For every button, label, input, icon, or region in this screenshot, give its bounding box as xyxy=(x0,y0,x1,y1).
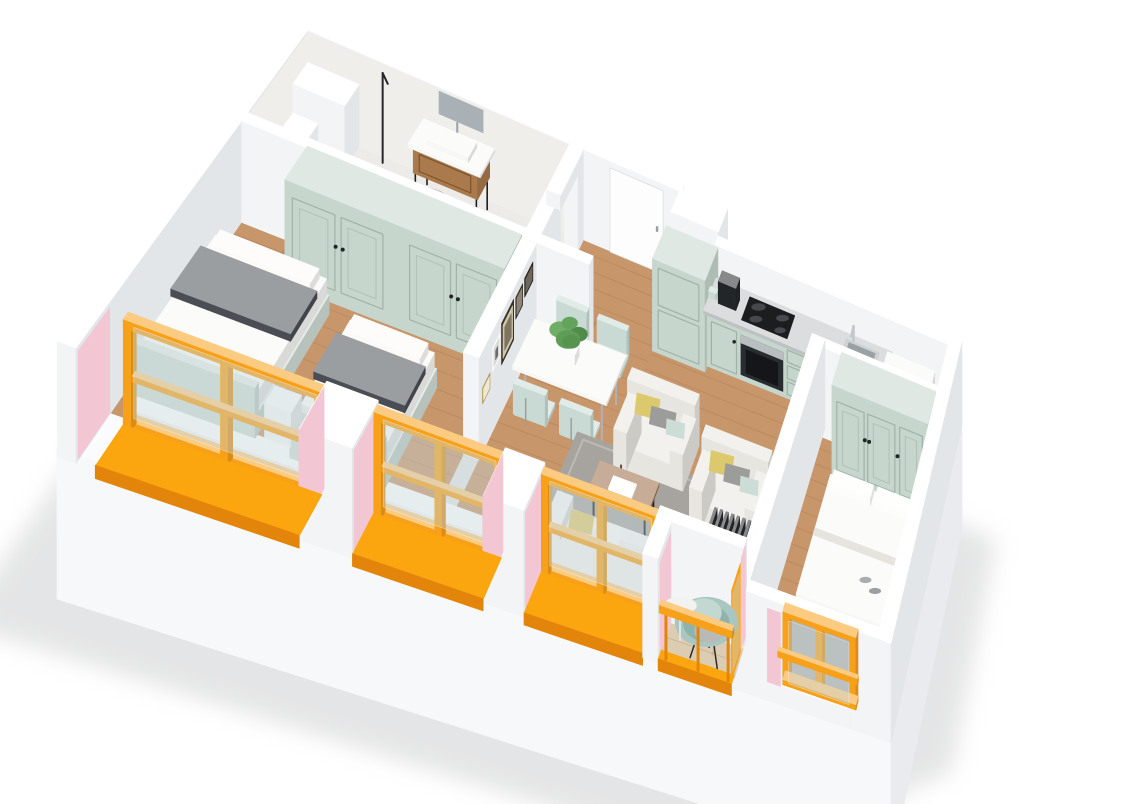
apartment-3d-floorplan xyxy=(0,0,1140,804)
burner-4 xyxy=(774,327,785,333)
burner-1 xyxy=(751,303,765,310)
burner-2 xyxy=(776,315,789,322)
slipper-1 xyxy=(859,577,871,583)
bedroom2-front-wall-r xyxy=(856,620,894,743)
floorplan-render-canvas xyxy=(0,0,1140,804)
bedroom2-pink-loggia xyxy=(741,546,745,650)
plant-leaf-4 xyxy=(562,317,578,329)
burner-3 xyxy=(749,316,762,323)
coffee-machine xyxy=(718,271,740,311)
plant-leaf-5 xyxy=(562,335,580,349)
slipper-2 xyxy=(869,588,881,594)
